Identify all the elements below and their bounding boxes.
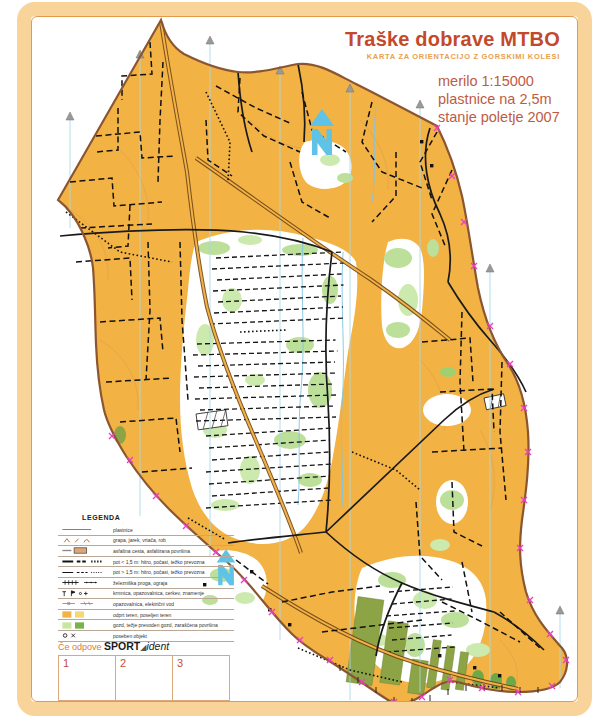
legend-row: gozd, težje prevoden gozd, zaraščena pov… xyxy=(58,620,234,631)
railway-fence-icons xyxy=(58,578,110,587)
landform-icons xyxy=(58,536,110,545)
sportident-header: Če odpove SPORT◢ident xyxy=(58,641,230,653)
title-block: Traške dobrave MTBO KARTA ZA ORIENTACIJO… xyxy=(345,28,560,62)
legend-row-label: plastnice xyxy=(113,527,133,533)
legend-row: opazovalnica, električni vod xyxy=(58,599,234,610)
punch-cell-1: 1 xyxy=(59,656,116,700)
narrow-path-icons xyxy=(58,568,110,577)
legend-row: železniška proga, ograja xyxy=(58,578,234,589)
legend-row-label: opazovalnica, električni vod xyxy=(113,601,174,607)
wide-path-icons xyxy=(58,557,110,566)
legend-row: pot < 1,5 m: hitro, počasi, težko prevoz… xyxy=(58,557,234,568)
point-feature-icons xyxy=(58,589,110,598)
sportident-prefix: Če odpove xyxy=(58,642,104,652)
map-status-text: stanje poletje 2007 xyxy=(438,108,560,126)
legend-row-label: gozd, težje prevoden gozd, zaraščena pov… xyxy=(113,622,218,628)
page-subtitle: KARTA ZA ORIENTACIJO Z GORSKIMI KOLESI xyxy=(345,53,560,62)
map-scale-text: merilo 1:15000 xyxy=(438,72,560,90)
legend-row-label: železniška proga, ograja xyxy=(113,580,167,586)
sportident-backup-box: Če odpove SPORT◢ident 1 2 3 xyxy=(58,641,230,701)
map-info-block: merilo 1:15000 plastnice na 2,5m stanje … xyxy=(438,72,560,126)
contour-line-icon xyxy=(58,525,110,534)
forest-swatches xyxy=(58,621,110,630)
legend-row-label: pot > 1,5 m: hitro, počasi, težko prevoz… xyxy=(113,569,205,575)
legend-row: pot > 1,5 m: hitro, počasi, težko prevoz… xyxy=(58,567,234,578)
legend-row-label: poseben objekt xyxy=(113,633,147,639)
legend: LEGENDA plastnice grapa, jarek, vrtača, … xyxy=(58,514,234,642)
legend-title: LEGENDA xyxy=(82,514,234,521)
sportident-brand-italic: ident xyxy=(146,640,169,652)
legend-row: asfaltna cesta, asfaltirana površina xyxy=(58,546,234,557)
legend-row: grapa, jarek, vrtača, rob xyxy=(58,536,234,547)
legend-row-label: grapa, jarek, vrtača, rob xyxy=(113,537,166,543)
map-sheet: Traške dobrave MTBO KARTA ZA ORIENTACIJO… xyxy=(0,0,600,723)
legend-row-label: odprt teren, poseljen teren xyxy=(113,612,171,618)
special-object-icons xyxy=(58,631,110,640)
legend-row-label: pot < 1,5 m: hitro, počasi, težko prevoz… xyxy=(113,559,205,565)
punch-cell-3: 3 xyxy=(173,656,229,700)
punch-cell-2: 2 xyxy=(116,656,173,700)
asphalt-road-icon xyxy=(58,546,110,555)
sportident-brand-bold: SPORT xyxy=(104,640,140,652)
page-title: Traške dobrave MTBO xyxy=(345,28,560,51)
legend-row: odprt teren, poseljen teren xyxy=(58,610,234,621)
contour-interval-text: plastnice na 2,5m xyxy=(438,90,560,108)
legend-row-label: krmnica, opazovalnica, cerkev, znamenje xyxy=(113,590,204,596)
open-land-swatches xyxy=(58,610,110,619)
powerline-icons xyxy=(58,599,110,608)
legend-row: plastnice xyxy=(58,525,234,536)
legend-row: krmnica, opazovalnica, cerkev, znamenje xyxy=(58,589,234,600)
sportident-punch-table: 1 2 3 xyxy=(58,655,230,701)
legend-row-label: asfaltna cesta, asfaltirana površina xyxy=(113,548,190,554)
